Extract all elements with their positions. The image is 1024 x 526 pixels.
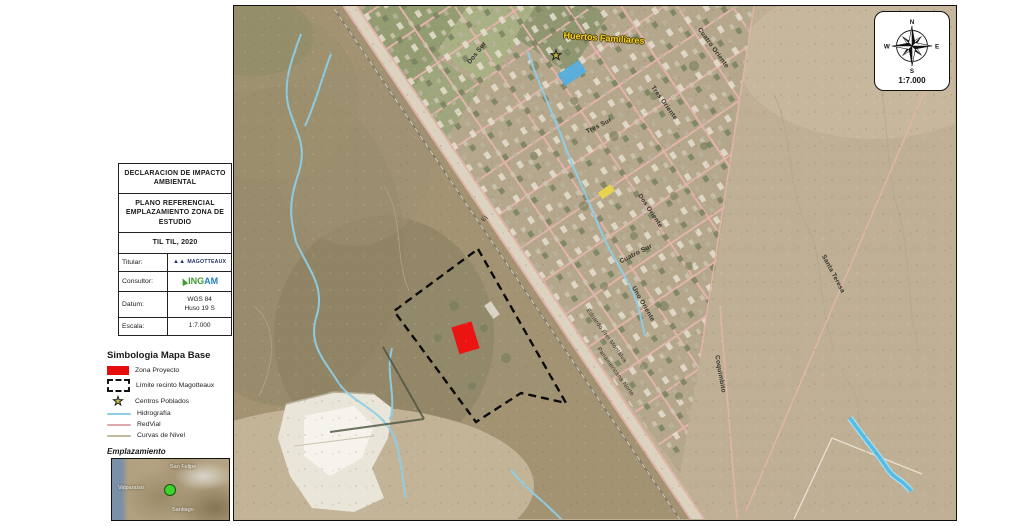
consultor-row: Consultor: ING AM xyxy=(119,272,231,293)
legend-item-label: Límite recinto Magotteaux xyxy=(136,382,214,389)
ingam-logo-am: AM xyxy=(204,276,218,288)
compass-w: W xyxy=(884,43,890,50)
escala-label: Escala: xyxy=(119,318,168,335)
compass-box: N E S W 1:7.000 xyxy=(874,11,950,91)
legend: Simbologia Mapa Base Zona Proyecto Límit… xyxy=(107,350,239,443)
ingam-logo-ing: ING xyxy=(188,276,204,288)
escala-row: Escala: 1:7.000 xyxy=(119,318,231,335)
legend-item-redvial: RedVial xyxy=(107,421,239,428)
legend-item-label: RedVial xyxy=(137,421,161,428)
title-block: DECLARACION DE IMPACTO AMBIENTAL PLANO R… xyxy=(118,163,232,336)
location-year: TIL TIL, 2020 xyxy=(119,233,231,253)
curvas-nivel-swatch xyxy=(107,435,131,437)
legend-heading: Simbologia Mapa Base xyxy=(107,350,239,361)
inset-label-north: San Felipe xyxy=(170,464,196,470)
limite-recinto-swatch xyxy=(107,379,130,392)
legend-item-label: Curvas de Nivel xyxy=(137,432,185,439)
legend-item-label: Zona Proyecto xyxy=(135,367,179,374)
consultor-value: ING AM xyxy=(168,272,231,292)
hidrografia-swatch xyxy=(107,413,131,415)
terrain-art xyxy=(234,6,955,519)
left-panel: DECLARACION DE IMPACTO AMBIENTAL PLANO R… xyxy=(0,0,233,526)
page: { "title_block": { "doc_type": "DECLARAC… xyxy=(0,0,1024,526)
magotteaux-logo-icon: ▲▲ xyxy=(173,259,185,265)
datum-value: WGS 84 Huso 19 S xyxy=(168,292,231,317)
star-icon: ★ xyxy=(107,396,129,406)
legend-item-label: Centros Poblados xyxy=(135,398,189,405)
inset-label-west: Valparaíso xyxy=(118,485,144,491)
legend-item-hidrografia: Hidrografía xyxy=(107,410,239,417)
inset-heading: Emplazamiento xyxy=(107,447,166,456)
legend-item-limite-recinto: Límite recinto Magotteaux xyxy=(107,379,239,392)
compass-n: N xyxy=(910,19,915,26)
datum-row: Datum: WGS 84 Huso 19 S xyxy=(119,292,231,318)
legend-item-zona-proyecto: Zona Proyecto xyxy=(107,366,239,375)
magotteaux-logo: ▲▲ MAGOTTEAUX xyxy=(173,259,226,266)
datum-line1: WGS 84 xyxy=(187,296,212,304)
titular-label: Titular: xyxy=(119,254,168,271)
titular-value: ▲▲ MAGOTTEAUX xyxy=(168,254,231,271)
zona-proyecto-swatch xyxy=(107,366,129,375)
plan-title: PLANO REFERENCIAL EMPLAZAMIENTO ZONA DE … xyxy=(119,194,231,233)
escala-value: 1:7.000 xyxy=(168,318,231,335)
satellite-map: ★ Huertos Familiares Dos Sur Cuatro Orie… xyxy=(234,6,955,519)
titular-row: Titular: ▲▲ MAGOTTEAUX xyxy=(119,254,231,272)
legend-item-curvas-nivel: Curvas de Nivel xyxy=(107,432,239,439)
datum-line2: Huso 19 S xyxy=(184,305,214,313)
compass-scale: 1:7.000 xyxy=(898,76,925,85)
ingam-logo: ING AM xyxy=(181,276,218,288)
compass-rose-icon: N E S W xyxy=(883,17,941,75)
legend-item-label: Hidrografía xyxy=(137,410,171,417)
magotteaux-logo-text: MAGOTTEAUX xyxy=(187,259,226,266)
inset-map: San Felipe Valparaíso Santiago xyxy=(111,458,230,521)
inset-label-south: Santiago xyxy=(172,507,194,513)
doc-type-title: DECLARACION DE IMPACTO AMBIENTAL xyxy=(119,164,231,194)
map-frame: ★ Huertos Familiares Dos Sur Cuatro Orie… xyxy=(233,5,957,521)
legend-item-centros-poblados: ★ Centros Poblados xyxy=(107,396,239,406)
compass-e: E xyxy=(935,43,939,50)
consultor-label: Consultor: xyxy=(119,272,168,292)
redvial-swatch xyxy=(107,424,131,426)
centro-poblado-star-icon: ★ xyxy=(550,49,562,62)
compass-s: S xyxy=(910,68,914,75)
inset-location-dot xyxy=(164,484,176,496)
ingam-leaf-icon xyxy=(180,277,188,286)
datum-label: Datum: xyxy=(119,292,168,317)
